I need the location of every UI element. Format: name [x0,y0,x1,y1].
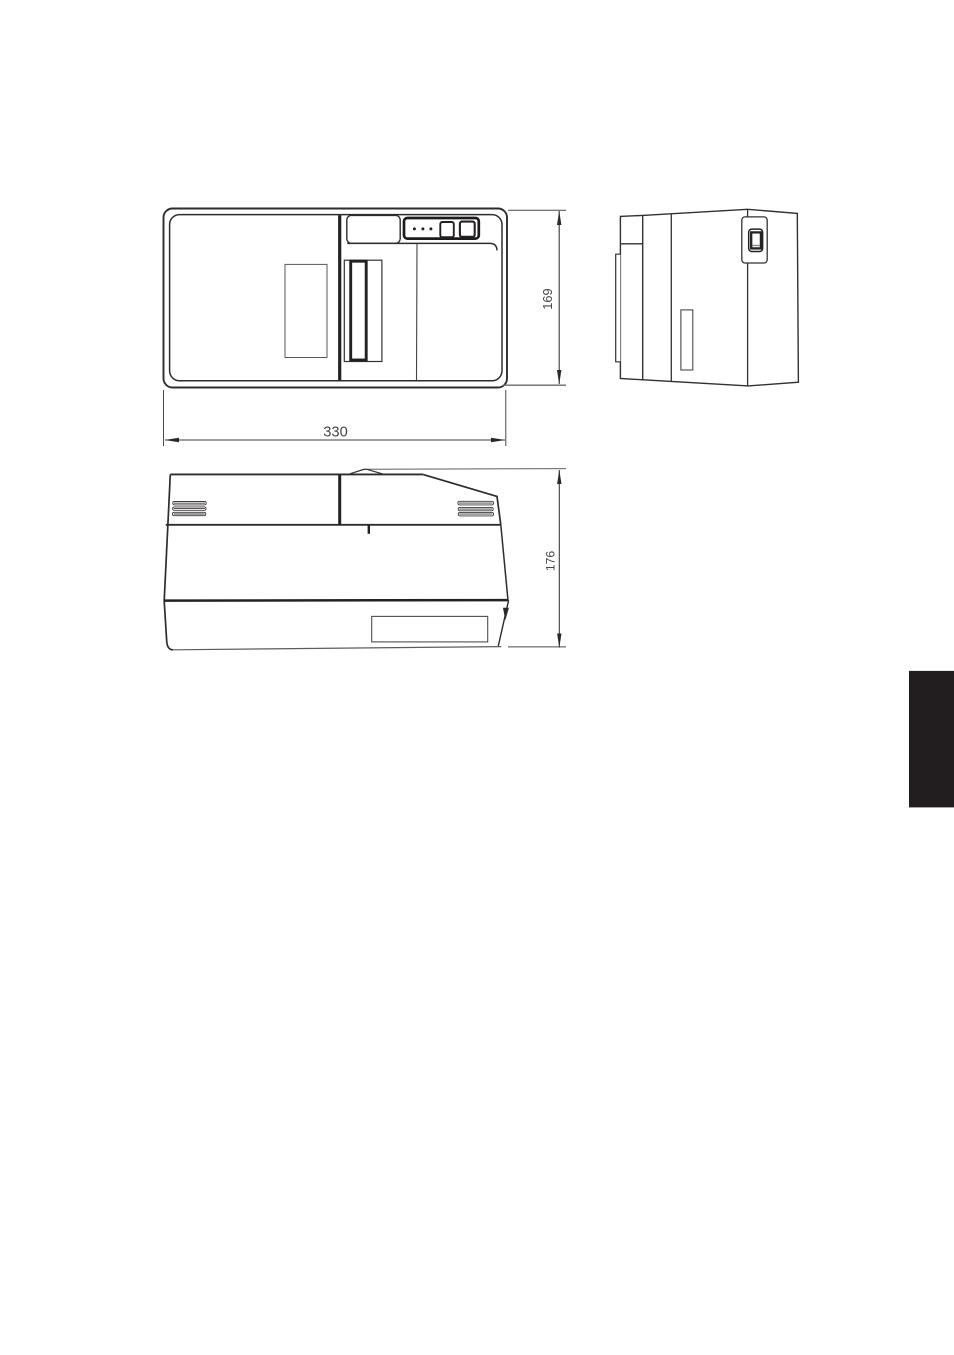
svg-text:169: 169 [540,288,555,309]
svg-text:330: 330 [323,424,348,440]
svg-text:176: 176 [544,551,558,572]
